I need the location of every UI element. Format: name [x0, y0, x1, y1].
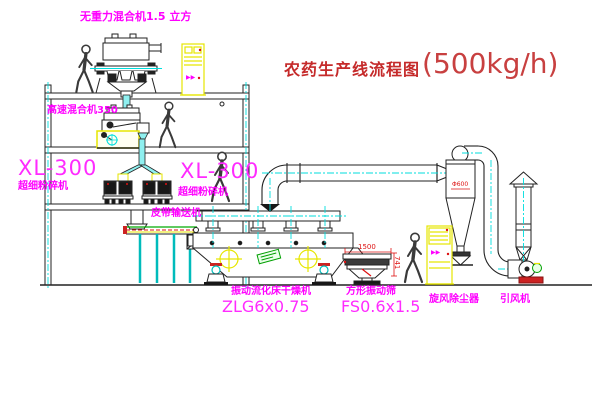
discharge-chute — [127, 210, 147, 229]
label-crusher-left-name: 超细粉碎机 — [18, 182, 68, 193]
label-dryer-name: 振动流化床干燥机 — [231, 287, 311, 298]
flow-diagram-canvas: 农药生产线流程图 (500kg/h) 无重力混合机1.5 立方 高速混合机350… — [0, 0, 600, 403]
dryer-air-stubs — [206, 221, 332, 231]
label-fan: 引风机 — [500, 295, 530, 306]
label-crusher-right-name: 超细粉碎机 — [178, 188, 228, 199]
label-screen-name: 方形振动筛 — [346, 287, 396, 298]
fluid-bed-dryer — [188, 206, 366, 285]
title-capacity: (500kg/h) — [422, 47, 558, 80]
person-floor2 — [160, 102, 176, 147]
exhaust-duct — [260, 163, 452, 212]
label-belt-conveyor: 皮带输送机 — [151, 209, 201, 220]
crusher-left — [103, 174, 133, 204]
dim-screen-length: 1500 — [358, 244, 376, 251]
label-crusher-right-model: XL-300 — [180, 161, 259, 182]
induced-draft-fan — [508, 260, 543, 283]
label-cyclone: 旋风除尘器 — [429, 295, 479, 306]
diagram-title: 农药生产线流程图 (500kg/h) — [284, 47, 558, 80]
label-screen-model: FS0.6x1.5 — [341, 299, 420, 315]
dim-cyclone-diameter: Φ600 — [452, 182, 468, 188]
exhaust-stack — [510, 172, 537, 262]
label-crusher-left-model: XL-300 — [18, 158, 97, 179]
title-text: 农药生产线流程图 — [284, 47, 420, 80]
person-ground — [405, 233, 422, 282]
label-high-speed-mixer: 高速混合机350 — [47, 106, 118, 117]
gravity-mixer — [90, 34, 162, 97]
cabinet-top-mark: ▶▶ — [186, 75, 195, 81]
dim-screen-height: 741 — [393, 256, 400, 269]
cabinet-right-mark: ▶▶ — [431, 250, 440, 256]
label-gravity-mixer: 无重力混合机1.5 立方 — [80, 11, 191, 23]
crusher-right — [142, 174, 172, 204]
label-dryer-model: ZLG6x0.75 — [222, 299, 310, 315]
control-cabinet-top — [180, 44, 206, 95]
